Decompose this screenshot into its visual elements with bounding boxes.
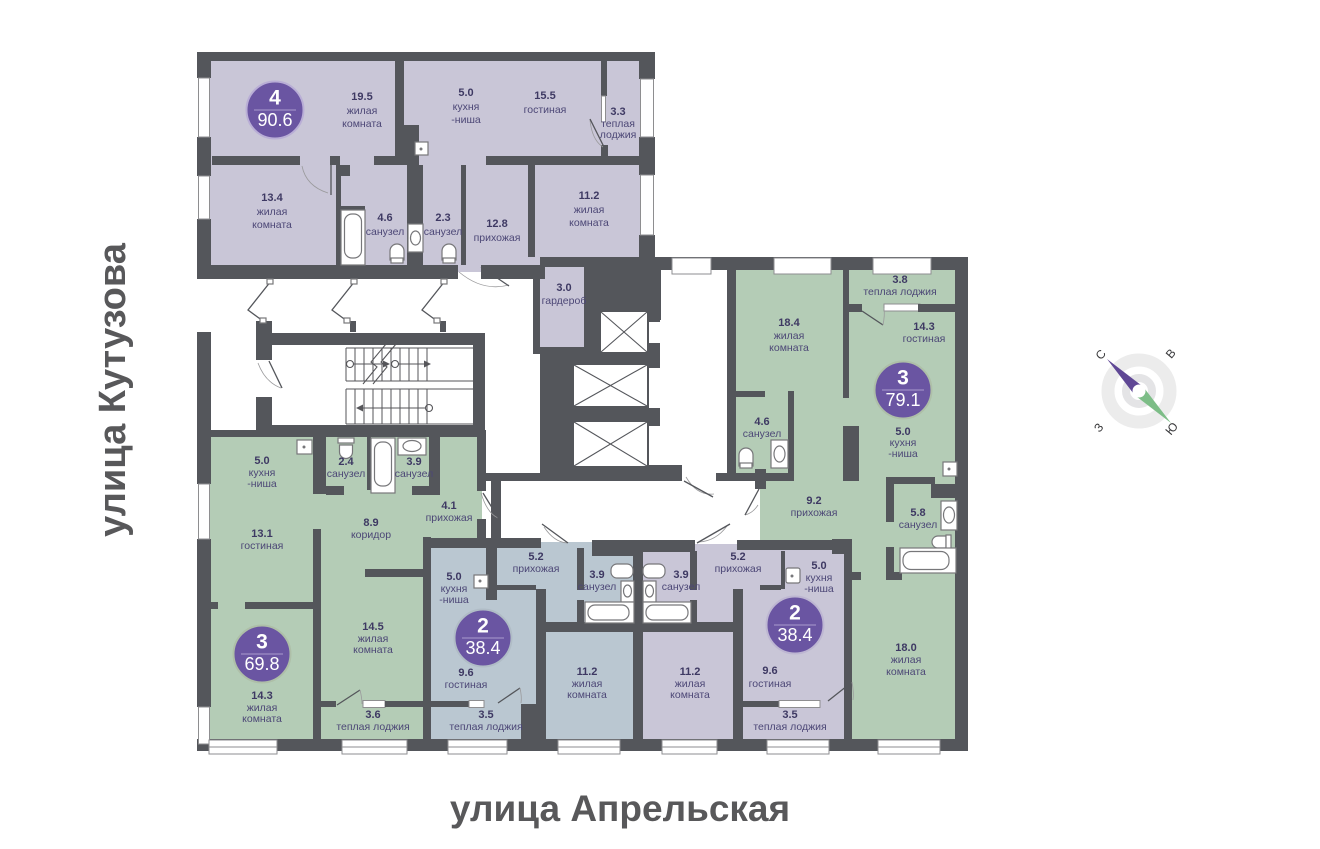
svg-text:теплая лоджия: теплая лоджия (863, 286, 936, 298)
svg-text:комната: комната (252, 219, 292, 231)
svg-text:3.9: 3.9 (673, 569, 688, 581)
svg-text:теплая лоджия: теплая лоджия (753, 721, 826, 733)
svg-text:19.5: 19.5 (351, 91, 372, 103)
svg-text:14.5: 14.5 (362, 621, 383, 633)
svg-text:санузел: санузел (662, 581, 700, 593)
svg-text:3.8: 3.8 (892, 274, 907, 286)
svg-text:улица Апрельская: улица Апрельская (450, 788, 790, 829)
svg-text:комната: комната (567, 689, 607, 701)
svg-text:санузел: санузел (743, 428, 781, 440)
svg-text:гостиная: гостиная (241, 540, 284, 552)
svg-text:санузел: санузел (578, 581, 616, 593)
svg-text:12.8: 12.8 (486, 218, 507, 230)
svg-text:14.3: 14.3 (251, 690, 272, 702)
svg-text:прихожая: прихожая (791, 507, 838, 519)
svg-text:4: 4 (269, 87, 281, 110)
svg-text:2: 2 (477, 615, 489, 638)
svg-text:9.2: 9.2 (806, 495, 821, 507)
svg-text:гостиная: гостиная (903, 333, 946, 345)
svg-text:теплая лоджия: теплая лоджия (449, 721, 522, 733)
svg-text:3.9: 3.9 (406, 456, 421, 468)
svg-text:18.0: 18.0 (895, 642, 916, 654)
svg-text:комната: комната (353, 644, 393, 656)
svg-text:9.6: 9.6 (458, 667, 473, 679)
svg-text:2.3: 2.3 (435, 212, 450, 224)
svg-text:комната: комната (769, 342, 809, 354)
svg-text:11.2: 11.2 (680, 666, 701, 678)
svg-text:прихожая: прихожая (513, 563, 560, 575)
svg-text:13.1: 13.1 (251, 528, 272, 540)
svg-text:-ниша: -ниша (888, 448, 918, 460)
svg-text:4.6: 4.6 (754, 416, 769, 428)
svg-text:прихожая: прихожая (715, 563, 762, 575)
svg-text:санузел: санузел (899, 519, 937, 531)
svg-text:5.0: 5.0 (446, 571, 461, 583)
svg-text:15.5: 15.5 (534, 90, 555, 102)
svg-text:жилая: жилая (347, 105, 378, 117)
svg-text:38.4: 38.4 (777, 625, 812, 645)
svg-text:14.3: 14.3 (913, 321, 934, 333)
svg-text:13.4: 13.4 (261, 192, 283, 204)
svg-text:гостиная: гостиная (749, 678, 792, 690)
svg-text:69.8: 69.8 (244, 654, 279, 674)
svg-text:11.2: 11.2 (579, 190, 600, 202)
svg-text:санузел: санузел (424, 226, 462, 238)
svg-text:3: 3 (897, 367, 909, 390)
svg-text:-ниша: -ниша (439, 594, 469, 606)
svg-text:-ниша: -ниша (451, 114, 481, 126)
svg-text:комната: комната (670, 689, 710, 701)
svg-text:79.1: 79.1 (885, 390, 920, 410)
svg-text:5.0: 5.0 (811, 560, 826, 572)
svg-text:гостиная: гостиная (524, 104, 567, 116)
svg-text:2.4: 2.4 (338, 456, 354, 468)
svg-text:5.0: 5.0 (458, 87, 473, 99)
svg-text:3: 3 (256, 631, 268, 654)
svg-text:гостиная: гостиная (445, 679, 488, 691)
svg-text:кухня: кухня (453, 101, 480, 113)
svg-text:жилая: жилая (891, 654, 922, 666)
svg-text:4.6: 4.6 (377, 212, 392, 224)
svg-text:3.5: 3.5 (478, 709, 493, 721)
svg-text:-ниша: -ниша (804, 583, 834, 595)
svg-text:комната: комната (342, 118, 382, 130)
svg-text:лоджия: лоджия (600, 129, 637, 141)
svg-text:5.0: 5.0 (254, 455, 269, 467)
svg-text:90.6: 90.6 (257, 110, 292, 130)
svg-text:5.2: 5.2 (730, 551, 745, 563)
svg-text:38.4: 38.4 (465, 638, 500, 658)
svg-text:жилая: жилая (774, 330, 805, 342)
svg-text:санузел: санузел (395, 468, 433, 480)
svg-text:3.5: 3.5 (782, 709, 797, 721)
svg-text:комната: комната (242, 713, 282, 725)
svg-text:жилая: жилая (257, 206, 288, 218)
svg-text:11.2: 11.2 (577, 666, 598, 678)
svg-text:4.1: 4.1 (441, 500, 456, 512)
svg-text:3.0: 3.0 (556, 282, 571, 294)
svg-text:жилая: жилая (574, 204, 605, 216)
svg-text:гардероб: гардероб (542, 295, 587, 307)
svg-text:5.2: 5.2 (528, 551, 543, 563)
svg-text:18.4: 18.4 (778, 317, 800, 329)
svg-text:комната: комната (569, 217, 609, 229)
svg-text:прихожая: прихожая (426, 512, 473, 524)
svg-text:теплая лоджия: теплая лоджия (336, 721, 409, 733)
svg-text:9.6: 9.6 (762, 665, 777, 677)
svg-text:санузел: санузел (366, 226, 404, 238)
svg-text:3.9: 3.9 (589, 569, 604, 581)
svg-text:коридор: коридор (351, 529, 391, 541)
svg-text:прихожая: прихожая (474, 232, 521, 244)
svg-text:санузел: санузел (327, 468, 365, 480)
svg-text:8.9: 8.9 (363, 517, 378, 529)
svg-text:3.6: 3.6 (365, 709, 380, 721)
svg-text:3.3: 3.3 (610, 106, 625, 118)
svg-text:комната: комната (886, 666, 926, 678)
svg-text:улица Кутузова: улица Кутузова (92, 242, 134, 537)
svg-text:-ниша: -ниша (247, 478, 277, 490)
svg-text:5.8: 5.8 (910, 507, 925, 519)
svg-text:2: 2 (789, 602, 801, 625)
